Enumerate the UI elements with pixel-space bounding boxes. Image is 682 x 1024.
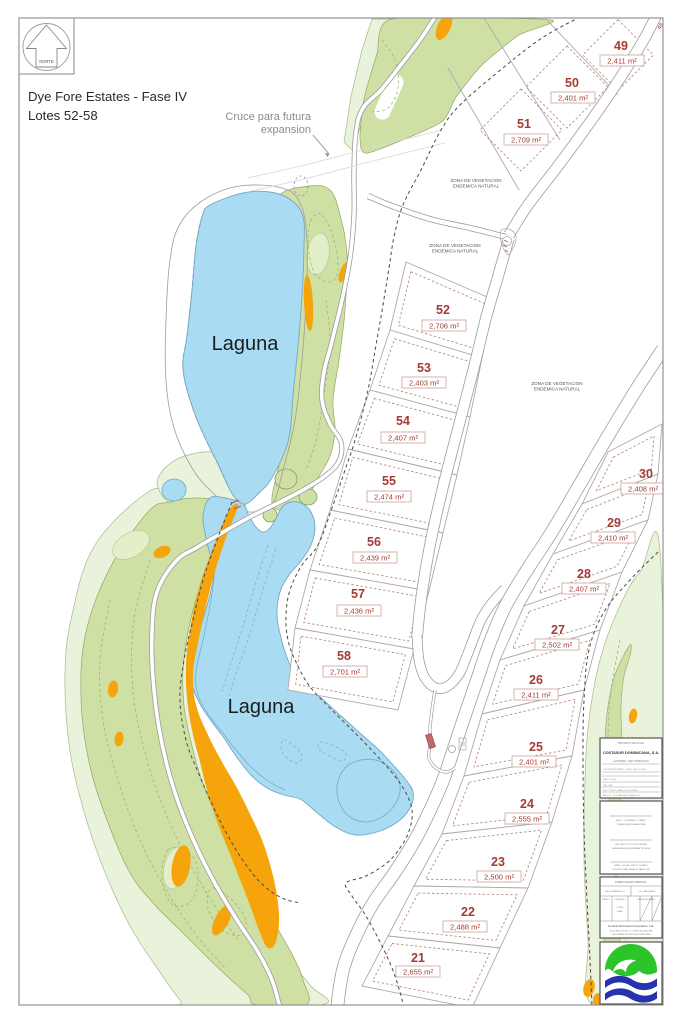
svg-text:DIBUJO: DIBUJO bbox=[602, 899, 610, 901]
svg-text:LA ROMANA - REP. DOMINICANA: LA ROMANA - REP. DOMINICANA bbox=[613, 760, 649, 763]
svg-text:27: 27 bbox=[551, 623, 565, 637]
svg-text:REG. DESARROLLO: REG. DESARROLLO bbox=[605, 890, 625, 893]
svg-text:2,474 m²: 2,474 m² bbox=[374, 493, 404, 502]
svg-text:COL. MEJORADO: COL. MEJORADO bbox=[638, 890, 656, 893]
svg-text:LA ROMANA, REPUBLICA DOMINICAN: LA ROMANA, REPUBLICA DOMINICANA bbox=[612, 933, 651, 936]
svg-text:CONSULTORIA CASA DE CAMPO RD: CONSULTORIA CASA DE CAMPO RD bbox=[612, 868, 650, 871]
svg-text:LOTES: LOTES bbox=[617, 907, 624, 909]
svg-text:Central Romana Corporation, Lt: Central Romana Corporation, Ltd. bbox=[608, 924, 655, 928]
svg-text:57: 57 bbox=[351, 587, 365, 601]
svg-text:PLANIFICACION MAESTRA: PLANIFICACION MAESTRA bbox=[617, 823, 645, 826]
svg-text:ZONA DE VEGETACIONENDEMICA NAT: ZONA DE VEGETACIONENDEMICA NATURAL bbox=[531, 381, 582, 392]
svg-text:2,701 m²: 2,701 m² bbox=[330, 668, 360, 677]
svg-text:28: 28 bbox=[577, 567, 591, 581]
svg-text:VERSION FECHA: VERSION FECHA bbox=[638, 898, 656, 901]
svg-text:Laguna: Laguna bbox=[212, 333, 280, 355]
svg-text:ZONA DE VEGETACIONENDEMICA NAT: ZONA DE VEGETACIONENDEMICA NATURAL bbox=[450, 178, 501, 189]
svg-text:COSTASUR DOMINICANA, S.A.: COSTASUR DOMINICANA, S.A. bbox=[603, 751, 659, 755]
svg-text:2,401 m²: 2,401 m² bbox=[558, 94, 588, 103]
svg-text:24: 24 bbox=[520, 797, 534, 811]
svg-text:ESC. 1:2000 FASE IV DYE FORE: ESC. 1:2000 FASE IV DYE FORE bbox=[603, 789, 638, 792]
svg-text:21: 21 bbox=[411, 951, 425, 965]
svg-text:54: 54 bbox=[396, 414, 410, 428]
svg-text:AGROINDUSTRIAL Y COMERCIALIZAD: AGROINDUSTRIAL Y COMERCIALIZADORA bbox=[610, 930, 653, 933]
svg-text:2,555 m²: 2,555 m² bbox=[512, 815, 542, 824]
svg-text:56: 56 bbox=[367, 535, 381, 549]
svg-text:PROYECTO DE LOTES: PROYECTO DE LOTES bbox=[618, 742, 644, 745]
svg-text:51: 51 bbox=[517, 117, 531, 131]
svg-text:FASE: FASE bbox=[617, 910, 623, 913]
svg-text:2,655 m²: 2,655 m² bbox=[403, 968, 433, 977]
svg-text:DIB. CAD: DIB. CAD bbox=[603, 784, 613, 787]
svg-text:2,407 m²: 2,407 m² bbox=[569, 585, 599, 594]
svg-text:CHEQUEO: CHEQUEO bbox=[615, 899, 626, 901]
svg-text:ZONA DE VEGETACIONENDEMICA NAT: ZONA DE VEGETACIONENDEMICA NATURAL bbox=[429, 243, 480, 254]
svg-text:22: 22 bbox=[461, 905, 475, 919]
svg-text:2,439 m²: 2,439 m² bbox=[360, 554, 390, 563]
svg-text:GERENCIA DE INGENIERIA TECNICA: GERENCIA DE INGENIERIA TECNICA bbox=[612, 847, 651, 850]
svg-text:2,500 m²: 2,500 m² bbox=[484, 873, 514, 882]
svg-text:49: 49 bbox=[614, 39, 628, 53]
svg-text:23: 23 bbox=[491, 855, 505, 869]
svg-text:55: 55 bbox=[382, 474, 396, 488]
svg-text:50: 50 bbox=[565, 76, 579, 90]
svg-text:FNB. 10-2007: FNB. 10-2007 bbox=[603, 779, 617, 781]
svg-text:52: 52 bbox=[436, 303, 450, 317]
svg-text:Cruce para futura: Cruce para futura bbox=[225, 111, 311, 123]
svg-text:58: 58 bbox=[337, 649, 351, 663]
svg-text:25: 25 bbox=[529, 740, 543, 754]
svg-text:2,709 m²: 2,709 m² bbox=[511, 136, 541, 145]
svg-text:Dye Fore Estates - Fase IV: Dye Fore Estates - Fase IV bbox=[28, 89, 187, 104]
svg-text:2,411 m²: 2,411 m² bbox=[521, 691, 551, 700]
svg-text:2,411 m²: 2,411 m² bbox=[607, 57, 637, 66]
svg-text:APRO. COLAB. DEPTO. DISENO: APRO. COLAB. DEPTO. DISENO bbox=[614, 864, 647, 867]
svg-text:expansion: expansion bbox=[261, 124, 311, 136]
svg-text:2,407 m²: 2,407 m² bbox=[388, 434, 418, 443]
svg-text:ING. PROYECTO POR LIMITES: ING. PROYECTO POR LIMITES bbox=[615, 844, 647, 846]
svg-text:29: 29 bbox=[607, 516, 621, 530]
svg-text:2,408 m²: 2,408 m² bbox=[628, 485, 658, 494]
svg-text:Laguna: Laguna bbox=[228, 696, 296, 718]
svg-text:DYE FORE ESTATES - SECC. DEL G: DYE FORE ESTATES - SECC. DEL GOLFO bbox=[603, 768, 646, 771]
svg-text:2,401 m²: 2,401 m² bbox=[519, 758, 549, 767]
svg-text:2,410 m²: 2,410 m² bbox=[598, 534, 628, 543]
svg-text:26: 26 bbox=[529, 673, 543, 687]
svg-text:PUBLICACION PARCIAL: PUBLICACION PARCIAL bbox=[615, 880, 647, 884]
svg-text:NORTE: NORTE bbox=[39, 59, 54, 64]
svg-text:REV. 02 COSTASUR@CCAMPO.DO: REV. 02 COSTASUR@CCAMPO.DO bbox=[603, 794, 641, 797]
svg-text:2,403 m²: 2,403 m² bbox=[409, 379, 439, 388]
svg-text:2,502 m²: 2,502 m² bbox=[542, 641, 572, 650]
svg-text:53: 53 bbox=[417, 361, 431, 375]
svg-text:2,436 m²: 2,436 m² bbox=[344, 607, 374, 616]
svg-text:2,706 m²: 2,706 m² bbox=[429, 322, 459, 331]
svg-text:Lotes 52-58: Lotes 52-58 bbox=[28, 108, 98, 123]
svg-text:30: 30 bbox=[639, 467, 653, 481]
svg-text:2,488 m²: 2,488 m² bbox=[450, 923, 480, 932]
svg-text:ARQ. L. GONZALEZ - PEREZ: ARQ. L. GONZALEZ - PEREZ bbox=[616, 819, 646, 822]
